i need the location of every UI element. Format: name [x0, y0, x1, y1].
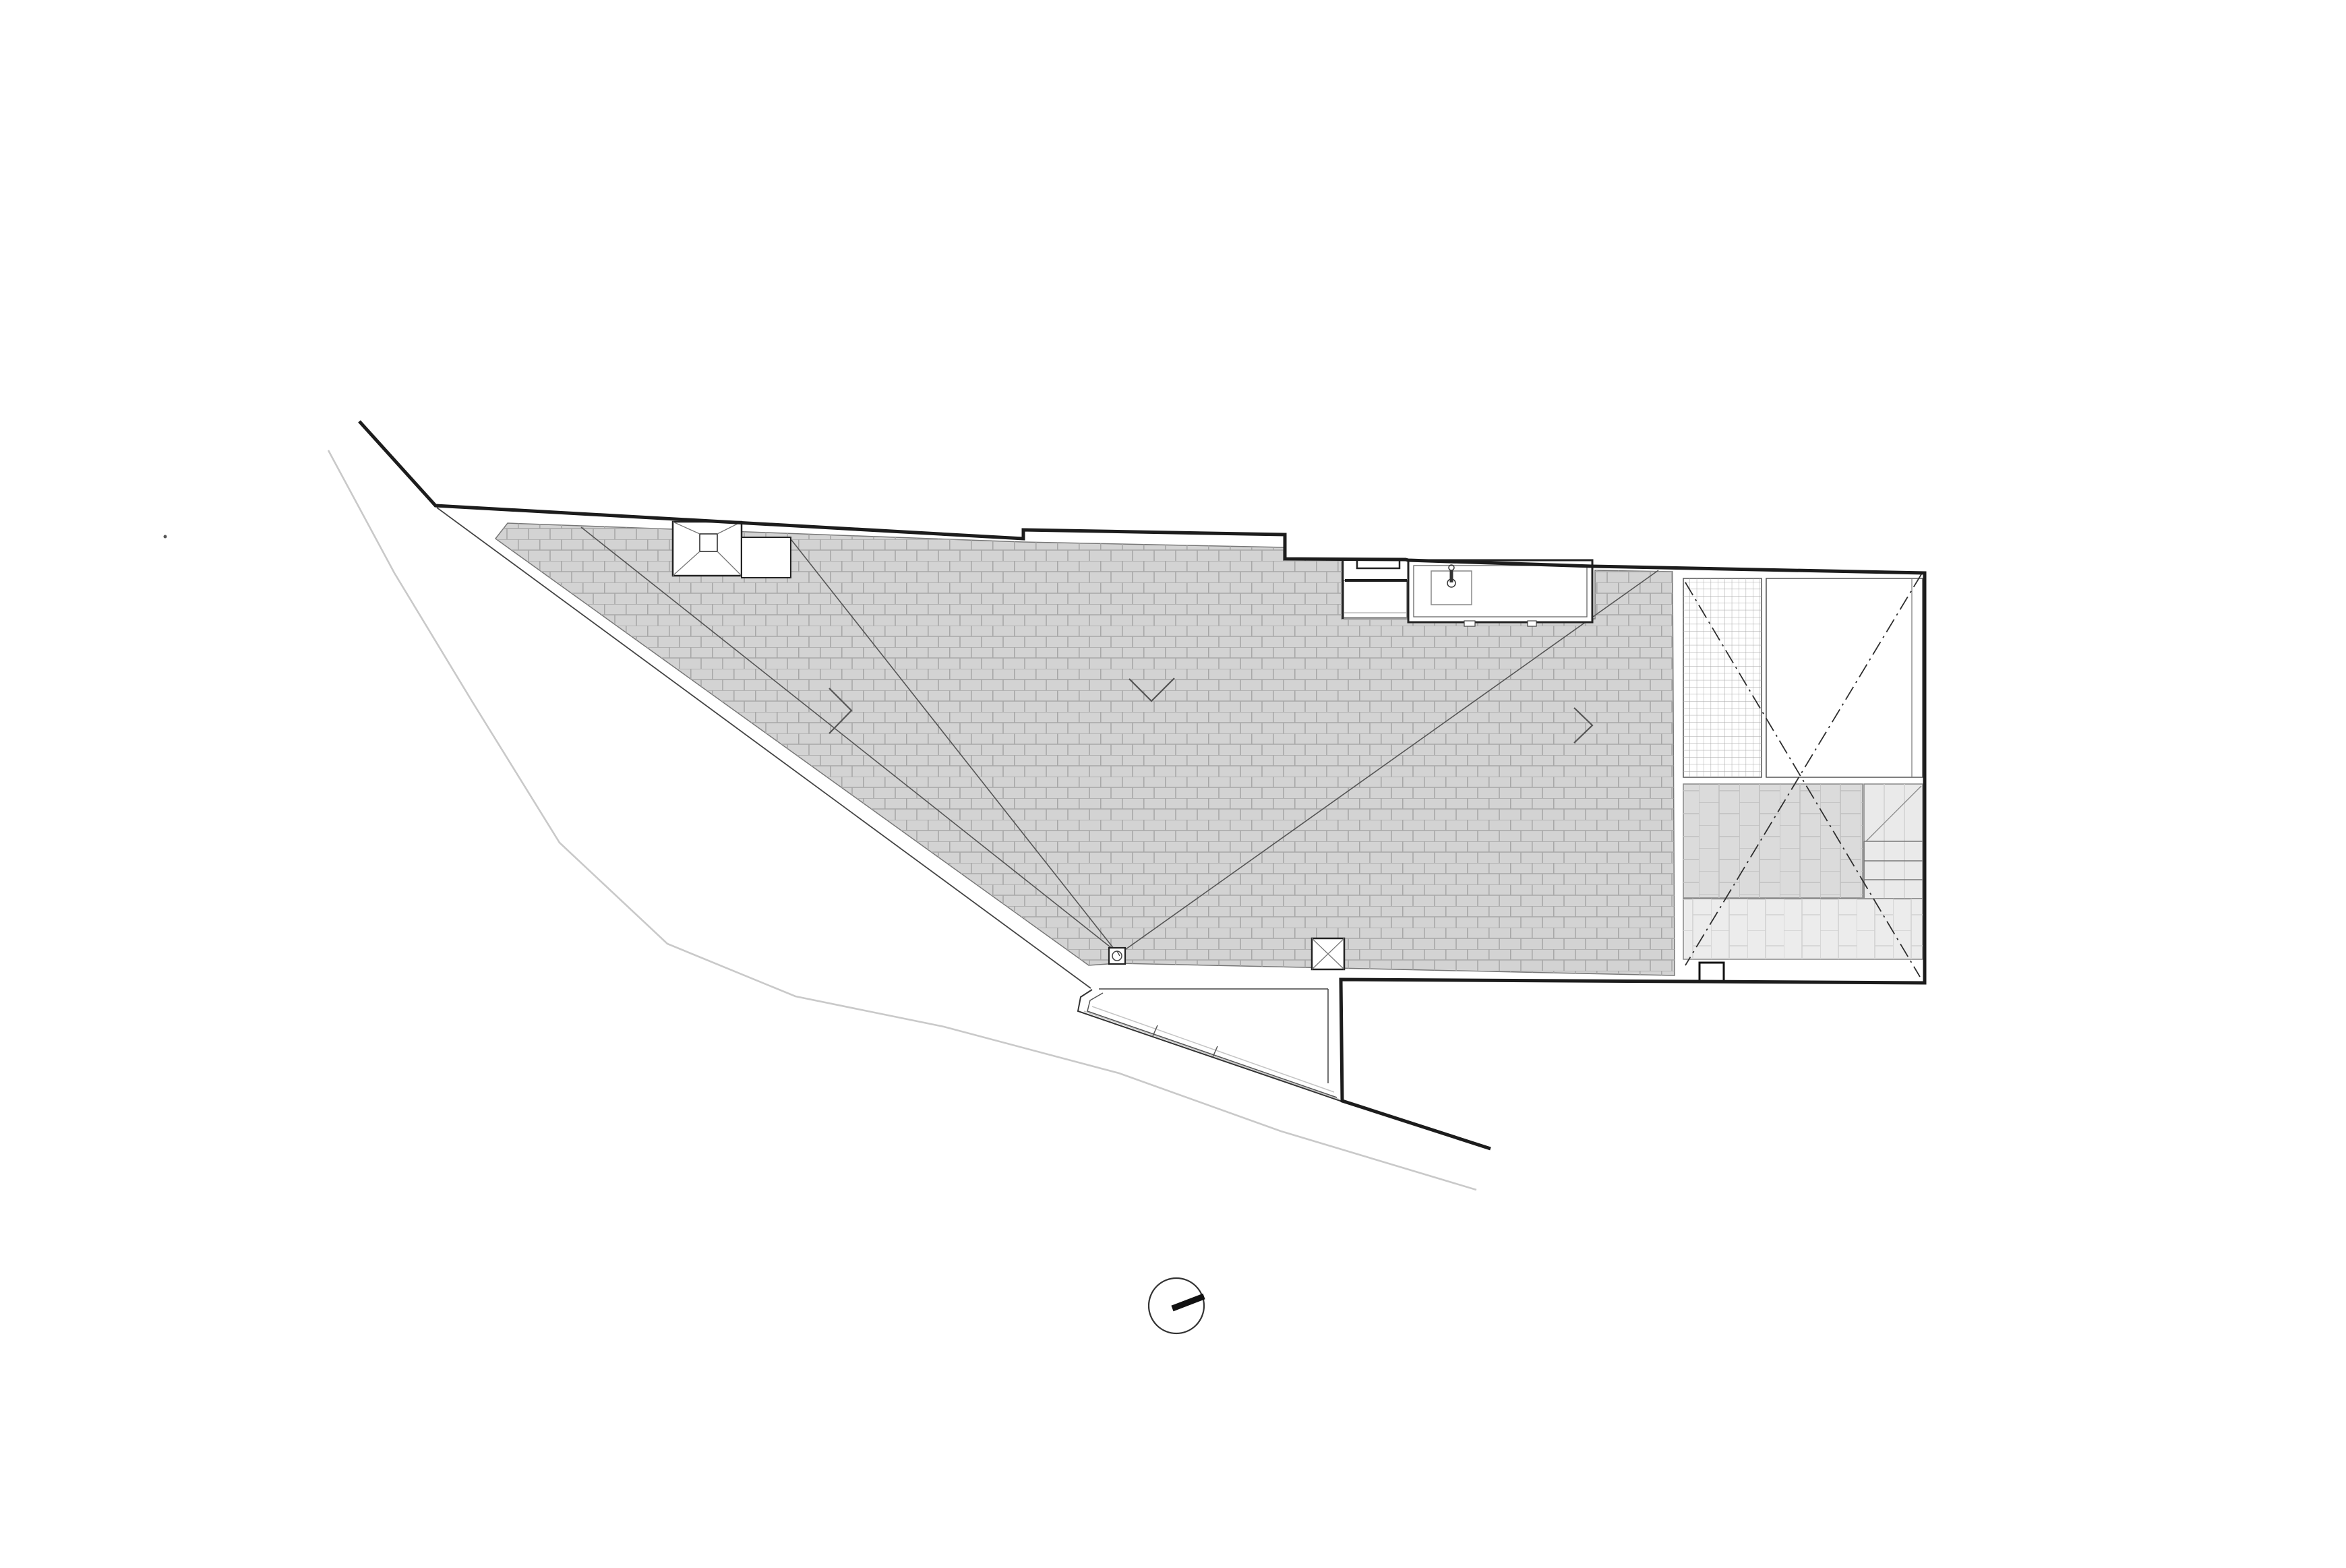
retaining-wall — [1078, 990, 1342, 1102]
rooflight-curb — [742, 537, 791, 578]
planter-niche — [1343, 561, 1407, 619]
seam-roof-band — [1683, 784, 1863, 898]
glass-grid-roof — [1683, 578, 1766, 777]
entrance-court — [1078, 989, 1342, 1102]
pyramid-rooflight — [673, 522, 742, 576]
chimney-box — [1700, 963, 1724, 982]
north-indicator — [1149, 1278, 1204, 1333]
roof-plan-sheet — [0, 0, 2346, 1568]
roof-stair — [1864, 784, 1923, 899]
roof-drain — [1109, 948, 1125, 964]
roof-counter-sink — [1408, 560, 1592, 626]
roof-plan-drawing — [0, 0, 2346, 1568]
lower-tile-band — [1683, 899, 1923, 959]
access-hatch — [1312, 938, 1344, 969]
terrace-void — [1766, 578, 1923, 777]
reference-dot — [164, 535, 167, 539]
